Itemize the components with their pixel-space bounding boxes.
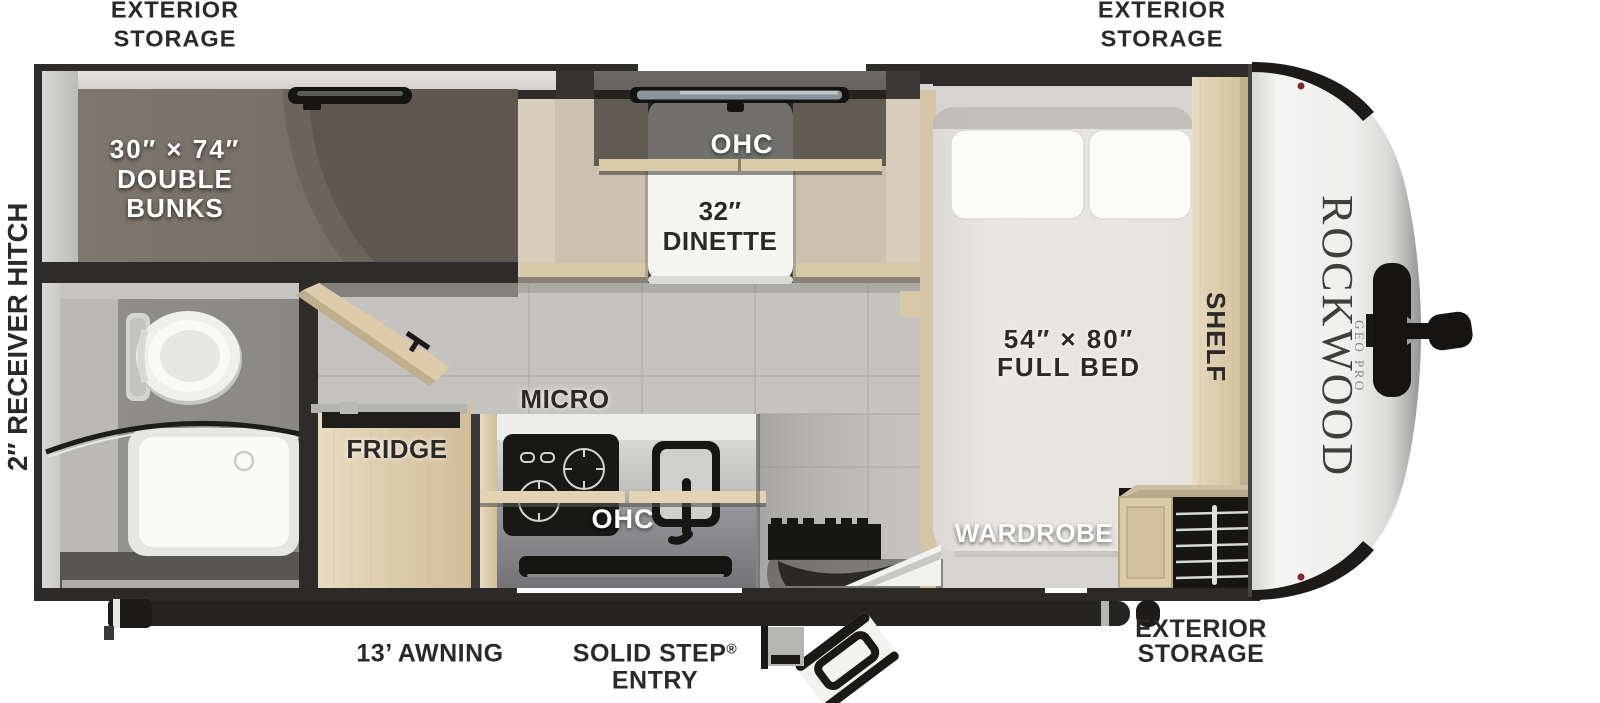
svg-text:GEO PRO: GEO PRO <box>1352 320 1367 393</box>
svg-text:DINETTE: DINETTE <box>663 226 778 256</box>
svg-text:STORAGE: STORAGE <box>1101 26 1224 52</box>
svg-text:SHELF: SHELF <box>1201 292 1231 382</box>
svg-text:WARDROBE: WARDROBE <box>955 518 1114 548</box>
svg-text:54″ × 80″: 54″ × 80″ <box>1004 324 1134 354</box>
svg-text:ENTRY: ENTRY <box>612 667 698 695</box>
svg-text:13’ AWNING: 13’ AWNING <box>356 640 503 668</box>
svg-text:FRIDGE: FRIDGE <box>346 434 447 464</box>
svg-text:OHC: OHC <box>711 129 774 159</box>
svg-text:32″: 32″ <box>699 196 742 226</box>
svg-text:2″ RECEIVER HITCH: 2″ RECEIVER HITCH <box>2 203 33 471</box>
svg-text:EXTERIOR: EXTERIOR <box>111 0 239 23</box>
svg-text:MICRO: MICRO <box>520 384 609 414</box>
svg-text:OHC: OHC <box>592 504 655 534</box>
svg-text:DOUBLE: DOUBLE <box>117 164 233 194</box>
svg-text:BUNKS: BUNKS <box>126 193 223 223</box>
svg-text:EXTERIOR: EXTERIOR <box>1098 0 1226 23</box>
svg-text:FULL BED: FULL BED <box>997 352 1141 382</box>
svg-text:EXTERIOR: EXTERIOR <box>1135 615 1267 643</box>
svg-text:STORAGE: STORAGE <box>1138 640 1265 668</box>
svg-text:30″ × 74″: 30″ × 74″ <box>110 134 240 164</box>
svg-text:SOLID STEP®: SOLID STEP® <box>573 640 738 668</box>
svg-text:STORAGE: STORAGE <box>114 26 237 52</box>
